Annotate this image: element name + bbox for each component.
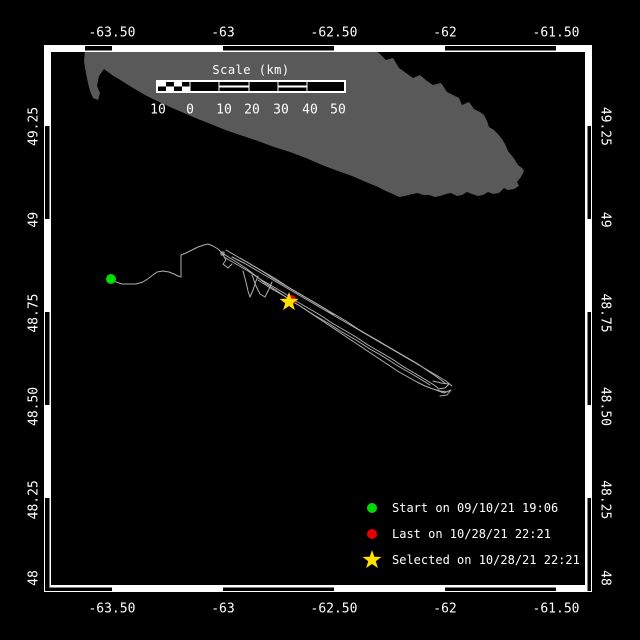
lon-label-top: -62	[433, 26, 456, 41]
lon-label-top: -62.50	[311, 26, 358, 41]
lat-label-left: 48.75	[27, 294, 42, 333]
frame-segment	[45, 312, 50, 405]
scale-tick-label: 30	[273, 103, 289, 118]
lon-label-top: -63.50	[88, 26, 135, 41]
lon-label-bottom: -63.50	[88, 602, 135, 617]
frame-segment	[45, 498, 50, 591]
frame-segment	[223, 46, 334, 51]
scale-checker-cell	[166, 87, 174, 92]
legend: Start on 09/10/21 19:06 Last on 10/28/21…	[360, 497, 580, 571]
legend-item-selected: Selected on 10/28/21 22:21	[360, 549, 580, 571]
start-position-marker	[106, 274, 116, 284]
legend-start-label: Start on 09/10/21 19:06	[392, 501, 558, 515]
legend-selected-label: Selected on 10/28/21 22:21	[392, 553, 580, 567]
lon-label-top: -61.50	[533, 26, 580, 41]
scale-stripe	[278, 86, 307, 88]
scale-stripe	[219, 86, 249, 88]
frame-segment	[45, 126, 50, 219]
start-dot-icon	[360, 497, 384, 519]
selected-star-icon	[360, 549, 384, 571]
scale-tick-label: 10	[150, 103, 166, 118]
scale-bar-title: Scale (km)	[181, 63, 321, 77]
legend-last-label: Last on 10/28/21 22:21	[392, 527, 551, 541]
lon-label-bottom: -62	[433, 602, 456, 617]
frame-segment	[588, 498, 592, 591]
scale-tick-label: 40	[302, 103, 318, 118]
frame-segment	[445, 46, 556, 51]
legend-item-start: Start on 09/10/21 19:06	[360, 497, 580, 519]
lat-label-right: 48.75	[598, 294, 613, 333]
scale-checker-cell	[174, 82, 182, 87]
last-dot-icon	[360, 523, 384, 545]
scale-checker-cell	[158, 82, 166, 87]
scale-tick-label: 10	[216, 103, 232, 118]
legend-item-last: Last on 10/28/21 22:21	[360, 523, 580, 545]
lat-label-left: 49	[27, 212, 42, 228]
lat-label-right: 48.50	[598, 387, 613, 426]
tracking-map: 1001020304050-63.50-63.50-63-63-62.50-62…	[0, 0, 640, 640]
frame-segment	[588, 312, 592, 405]
lat-label-right: 49	[598, 212, 613, 228]
lon-label-bottom: -62.50	[311, 602, 358, 617]
lon-label-top: -63	[211, 26, 234, 41]
scale-tick-label: 50	[330, 103, 346, 118]
lat-label-right: 48	[598, 570, 613, 586]
lat-label-left: 48.25	[27, 480, 42, 519]
lat-label-left: 48.50	[27, 387, 42, 426]
scale-tick-label: 0	[186, 103, 194, 118]
frame-segment	[85, 46, 112, 51]
lat-label-left: 48	[27, 570, 42, 586]
lat-label-right: 48.25	[598, 480, 613, 519]
lat-label-left: 49.25	[27, 107, 42, 146]
lon-label-bottom: -63	[211, 602, 234, 617]
lat-label-right: 49.25	[598, 107, 613, 146]
scale-tick-label: 20	[244, 103, 260, 118]
lon-label-bottom: -61.50	[533, 602, 580, 617]
frame-segment	[588, 126, 592, 219]
scale-checker-cell	[182, 87, 190, 92]
